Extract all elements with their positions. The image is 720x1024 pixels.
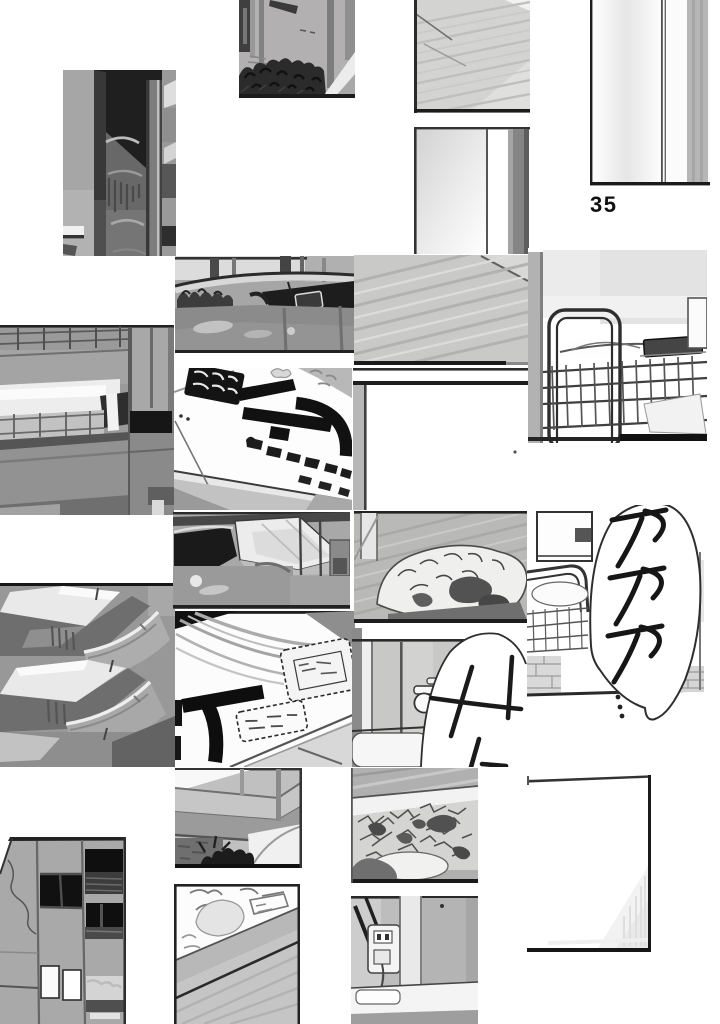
svg-text:35: 35 bbox=[590, 192, 617, 217]
